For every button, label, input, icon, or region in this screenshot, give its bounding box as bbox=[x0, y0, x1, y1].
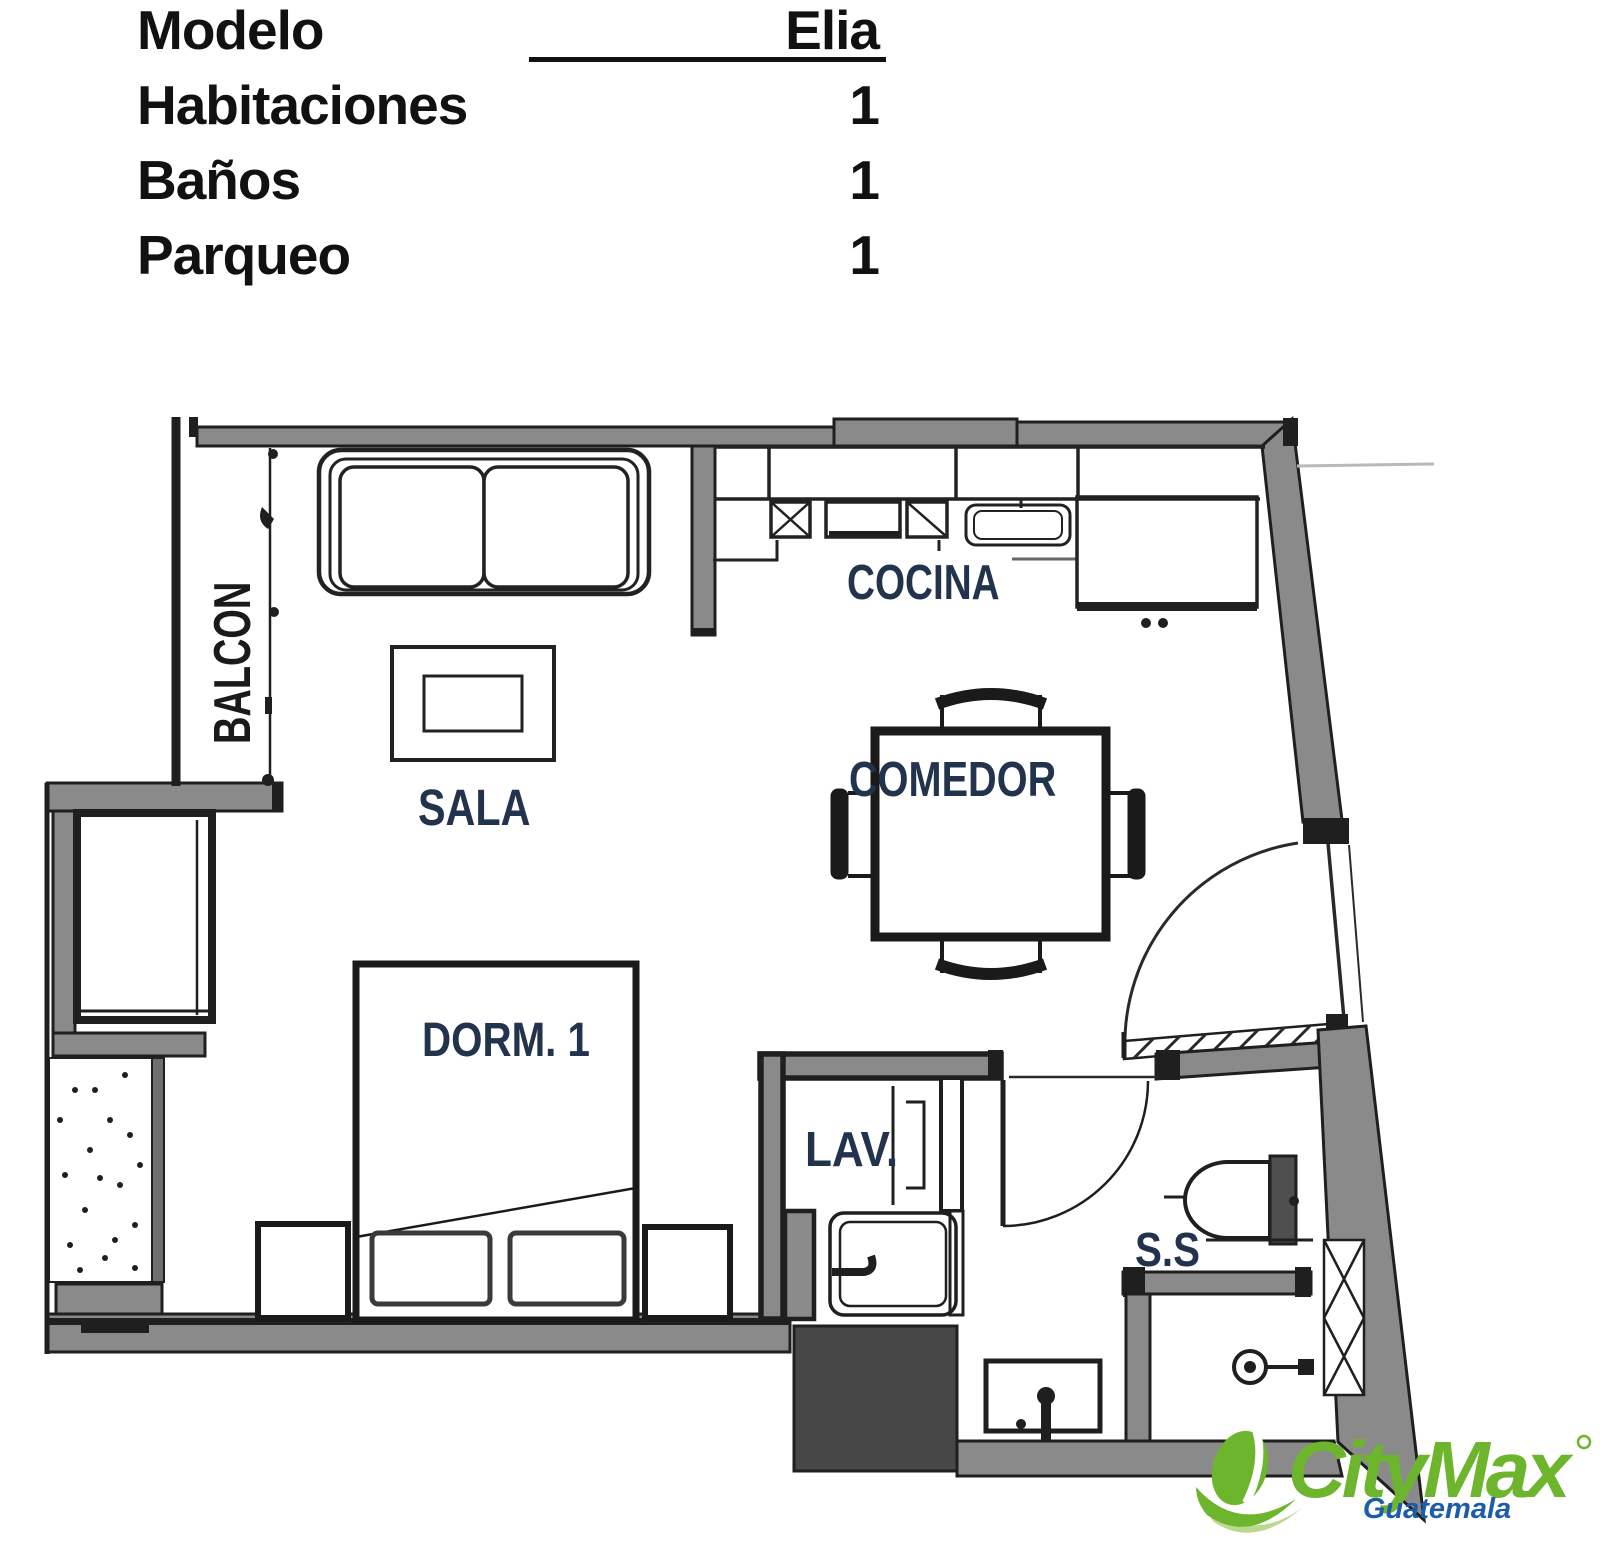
svg-text:Parqueo: Parqueo bbox=[137, 224, 350, 286]
svg-text:Habitaciones: Habitaciones bbox=[137, 74, 467, 136]
svg-text:COCINA: COCINA bbox=[847, 556, 1000, 610]
svg-text:Modelo: Modelo bbox=[137, 0, 323, 61]
svg-text:1: 1 bbox=[849, 149, 879, 211]
svg-text:1: 1 bbox=[849, 74, 879, 136]
svg-text:DORM. 1: DORM. 1 bbox=[422, 1014, 590, 1067]
svg-text:SALA: SALA bbox=[418, 779, 530, 836]
svg-text:BALCON: BALCON bbox=[203, 582, 261, 744]
svg-text:Elia: Elia bbox=[785, 0, 880, 61]
svg-text:S.S: S.S bbox=[1135, 1224, 1200, 1277]
svg-text:Guatemala: Guatemala bbox=[1363, 1493, 1511, 1525]
svg-text:LAV.: LAV. bbox=[805, 1122, 898, 1177]
svg-text:1: 1 bbox=[849, 224, 879, 286]
svg-text:COMEDOR: COMEDOR bbox=[849, 753, 1056, 807]
svg-text:Baños: Baños bbox=[137, 149, 300, 211]
